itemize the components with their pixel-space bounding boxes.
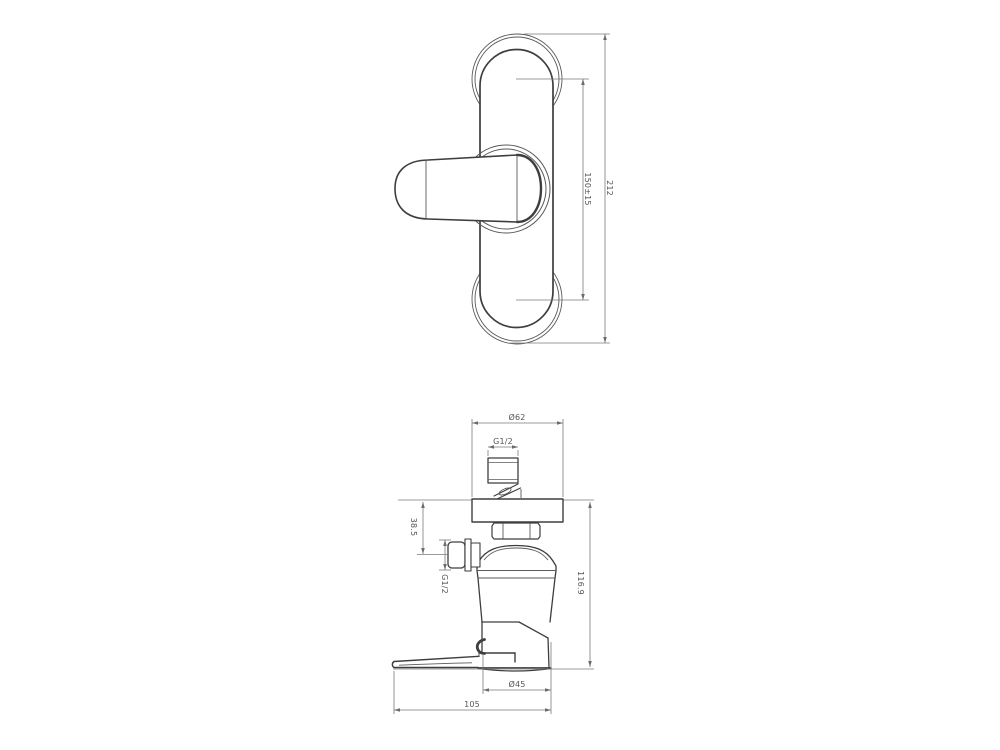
mounting-nut bbox=[492, 523, 540, 539]
dim-label-outlet-thread: G1/2 bbox=[440, 574, 449, 594]
dim-label-center-spacing: 150±15 bbox=[583, 172, 592, 205]
inlet-connector bbox=[488, 458, 518, 483]
dim-label-outlet-offset: 38.5 bbox=[409, 518, 418, 537]
faucet-technical-drawing: 212 150±15 bbox=[0, 0, 1000, 750]
dim-label-flange-diameter: Ø62 bbox=[508, 412, 525, 422]
dim-label-handle-projection: 105 bbox=[464, 700, 480, 709]
dim-label-inlet-thread: G1/2 bbox=[493, 437, 513, 446]
side-outlet bbox=[448, 539, 480, 571]
dim-label-body-diameter: Ø45 bbox=[508, 679, 525, 689]
wall-plate bbox=[472, 499, 563, 522]
dim-label-total-depth: 116.9 bbox=[576, 571, 585, 595]
drawing-canvas: 212 150±15 bbox=[0, 0, 1000, 750]
lever-handle bbox=[395, 155, 541, 222]
dim-label-total-height: 212 bbox=[605, 180, 614, 196]
